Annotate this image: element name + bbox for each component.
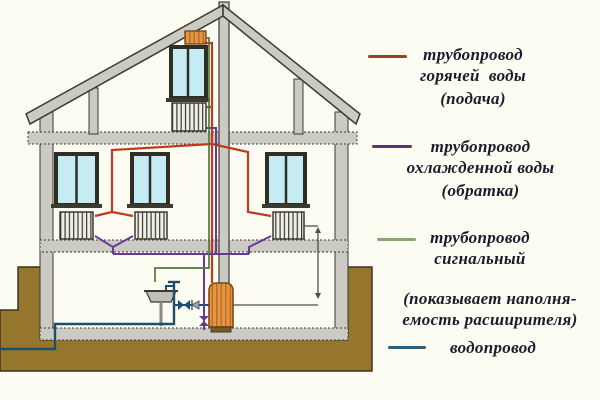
legend-label-water: водопровод bbox=[438, 337, 548, 358]
expansion-tank bbox=[185, 31, 206, 44]
legend-label-return: трубопровод охлажденной воды (обратка) bbox=[388, 136, 573, 201]
legend-text: трубопровод bbox=[388, 136, 573, 157]
boiler-base bbox=[211, 327, 231, 332]
attic-radiator bbox=[172, 103, 206, 131]
attic-window-sill bbox=[166, 98, 210, 102]
window-center-sill bbox=[127, 204, 173, 208]
legend-text: емость расширителя) bbox=[392, 309, 588, 330]
supply-branch-left2 bbox=[112, 212, 133, 216]
window-left-sill bbox=[51, 204, 102, 208]
legend-text: (обратка) bbox=[388, 180, 573, 201]
attic-post-right bbox=[294, 79, 303, 134]
legend-text: охлажденной воды bbox=[388, 157, 573, 178]
attic-post-left bbox=[89, 88, 98, 134]
heating-system-diagram: трубопровод горячей воды (подача) трубоп… bbox=[0, 0, 600, 400]
sink bbox=[146, 291, 176, 302]
legend-text: горячей воды bbox=[396, 65, 550, 86]
legend-line-water bbox=[388, 346, 426, 349]
radiator-left bbox=[60, 212, 93, 239]
legend-label-supply: трубопровод горячей воды (подача) bbox=[396, 44, 550, 109]
attic-floor-slab bbox=[28, 132, 357, 144]
arrow-up-icon bbox=[315, 227, 321, 233]
basement-floor-slab bbox=[40, 328, 348, 340]
chimney bbox=[219, 2, 229, 283]
legend-text: трубопровод bbox=[396, 44, 550, 65]
legend-label-signal: трубопровод сигнальный bbox=[405, 227, 555, 269]
left-wall bbox=[40, 112, 53, 340]
right-wall bbox=[335, 112, 348, 340]
window-right-sill bbox=[262, 204, 310, 208]
legend-text: сигнальный bbox=[405, 248, 555, 269]
radiator-center bbox=[135, 212, 167, 239]
second-floor-slab bbox=[40, 240, 348, 252]
legend-text: водопровод bbox=[438, 337, 548, 358]
legend-note-signal: (показывает наполня- емость расширителя) bbox=[392, 288, 588, 330]
legend-text: трубопровод bbox=[405, 227, 555, 248]
legend-text: (подача) bbox=[396, 88, 550, 109]
boiler bbox=[209, 283, 233, 327]
roof-right-slope bbox=[223, 5, 360, 124]
basement-room bbox=[53, 252, 335, 328]
legend-text: (показывает наполня- bbox=[392, 288, 588, 309]
radiator-right bbox=[273, 212, 304, 239]
